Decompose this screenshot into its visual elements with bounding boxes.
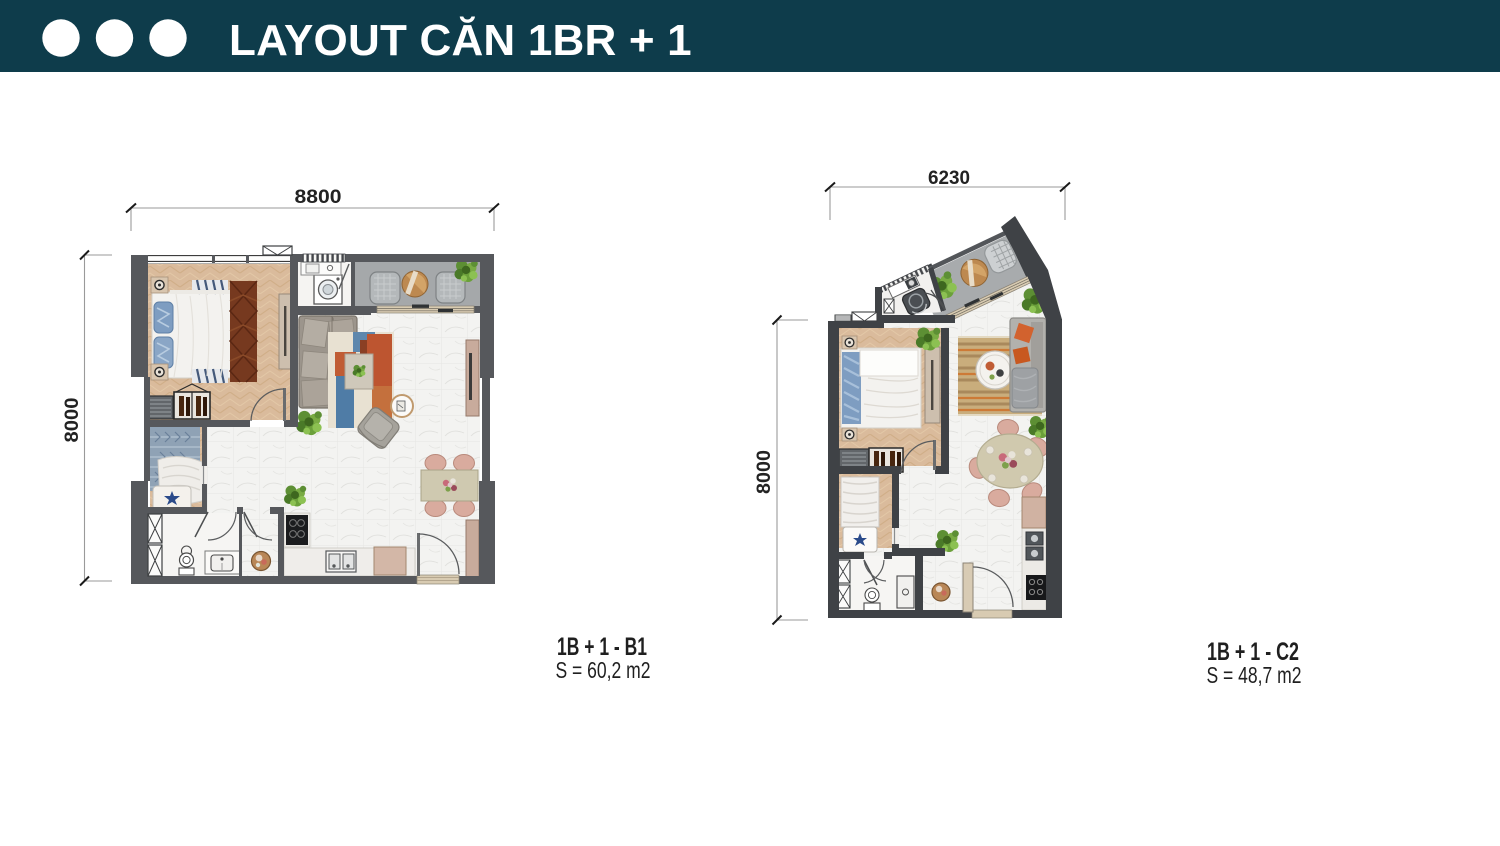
svg-text:S = 60,2 m2: S = 60,2 m2: [556, 657, 651, 683]
svg-text:S = 48,7 m2: S = 48,7 m2: [1207, 662, 1302, 688]
svg-text:8000: 8000: [754, 450, 775, 494]
svg-text:8800: 8800: [295, 186, 342, 208]
svg-text:8000: 8000: [61, 397, 83, 442]
svg-text:6230: 6230: [928, 168, 970, 189]
